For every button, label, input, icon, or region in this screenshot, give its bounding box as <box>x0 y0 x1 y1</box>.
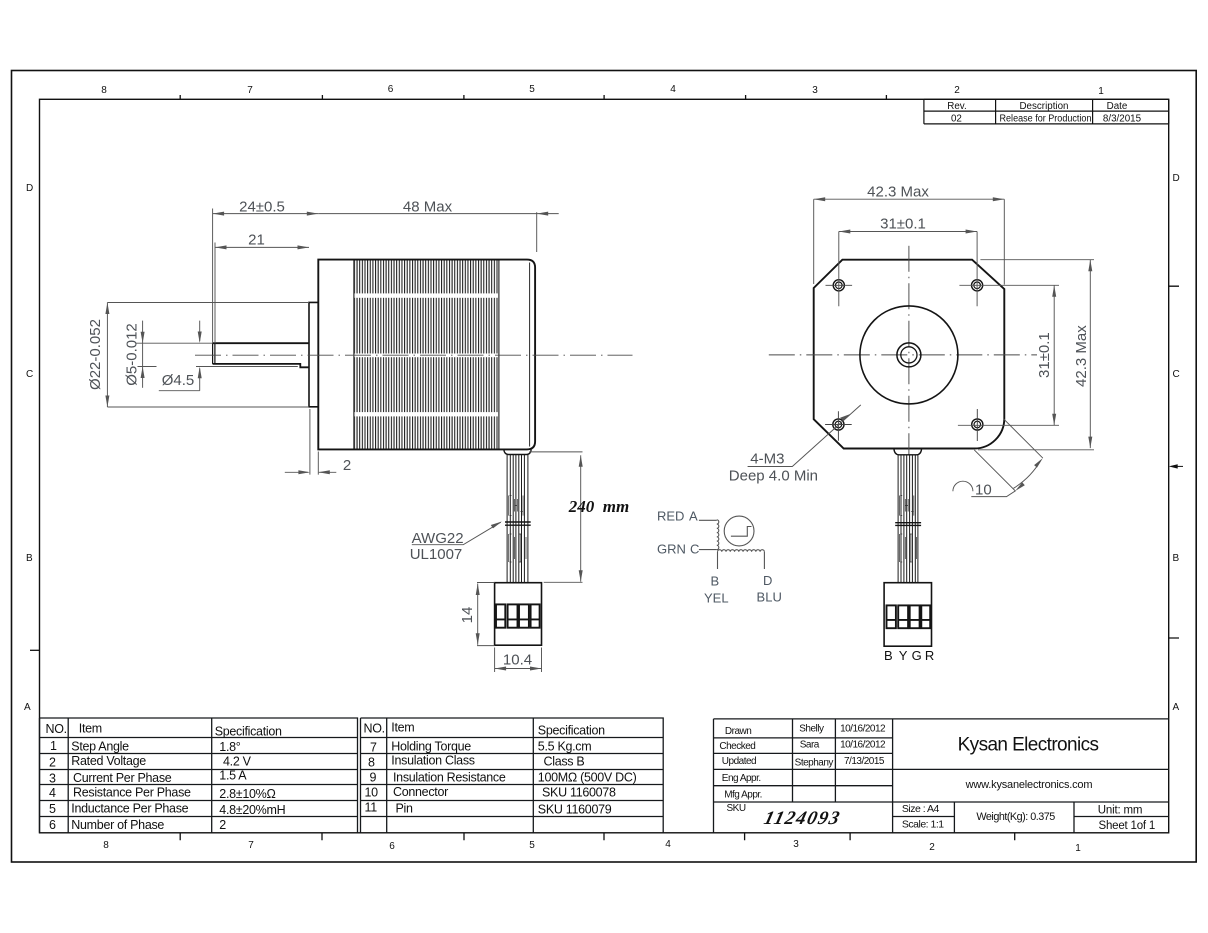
svg-text:Sheet 1of 1: Sheet 1of 1 <box>1098 820 1155 832</box>
svg-text:5: 5 <box>49 802 56 816</box>
svg-text:1: 1 <box>1075 843 1081 854</box>
svg-text:5: 5 <box>529 84 535 95</box>
svg-text:Release for Production: Release for Production <box>1000 113 1092 124</box>
svg-text:Updated: Updated <box>722 756 756 767</box>
svg-text:Item: Item <box>391 721 414 735</box>
svg-text:4: 4 <box>49 786 56 800</box>
svg-text:Resistance Per Phase: Resistance Per Phase <box>73 786 191 800</box>
svg-text:Current Per Phase: Current Per Phase <box>73 771 172 785</box>
svg-text:Step Angle: Step Angle <box>71 740 129 754</box>
svg-text:Kysan Electronics: Kysan Electronics <box>958 734 1099 755</box>
svg-text:Mfg Appr.: Mfg Appr. <box>724 790 762 801</box>
svg-text:3: 3 <box>793 839 799 850</box>
svg-text:Unit: mm: Unit: mm <box>1098 805 1142 817</box>
svg-text:Ø4.5: Ø4.5 <box>162 372 195 389</box>
svg-text:8/3/2015: 8/3/2015 <box>1103 113 1142 124</box>
svg-text:10/16/2012: 10/16/2012 <box>840 724 886 735</box>
svg-text:7: 7 <box>370 741 377 755</box>
svg-text:48 Max: 48 Max <box>403 199 453 216</box>
svg-text:100MΩ (500V DC): 100MΩ (500V DC) <box>538 771 637 785</box>
svg-text:2: 2 <box>929 842 935 853</box>
svg-text:Ø5-0.012: Ø5-0.012 <box>124 323 141 386</box>
svg-text:2: 2 <box>49 756 56 770</box>
svg-text:31±0.1: 31±0.1 <box>880 215 926 232</box>
svg-text:R: R <box>925 648 934 663</box>
svg-text:A: A <box>689 509 698 524</box>
svg-text:42.3 Max: 42.3 Max <box>867 184 929 201</box>
svg-text:D: D <box>763 573 772 588</box>
svg-text:10/16/2012: 10/16/2012 <box>840 739 886 750</box>
svg-text:2.8±10%Ω: 2.8±10%Ω <box>219 787 275 801</box>
svg-text:Item: Item <box>79 722 102 736</box>
svg-text:6: 6 <box>388 84 394 95</box>
svg-text:Number of Phase: Number of Phase <box>71 818 164 832</box>
svg-text:42.3 Max: 42.3 Max <box>1073 325 1090 387</box>
svg-text:Y: Y <box>899 648 908 663</box>
svg-text:6: 6 <box>389 841 395 852</box>
svg-text:A: A <box>1173 702 1180 713</box>
svg-text:24±0.5: 24±0.5 <box>239 199 285 216</box>
svg-text:3: 3 <box>49 772 56 786</box>
svg-text:B: B <box>884 648 893 663</box>
svg-text:8: 8 <box>368 756 375 770</box>
svg-text:NO.: NO. <box>46 722 67 736</box>
svg-text:SKU: SKU <box>727 803 746 814</box>
svg-text:Specification: Specification <box>538 724 605 738</box>
svg-text:Shelly: Shelly <box>799 724 824 735</box>
svg-text:Specification: Specification <box>215 725 282 739</box>
svg-text:3: 3 <box>812 85 818 96</box>
svg-text:Weight(Kg): 0.375: Weight(Kg): 0.375 <box>976 811 1055 823</box>
svg-text:B: B <box>26 553 33 564</box>
svg-text:UL1007: UL1007 <box>410 546 463 563</box>
svg-text:SKU 1160078: SKU 1160078 <box>542 786 616 800</box>
svg-text:2: 2 <box>954 85 960 96</box>
svg-text:10: 10 <box>365 786 379 800</box>
svg-text:2: 2 <box>219 818 226 832</box>
svg-text:4: 4 <box>670 84 676 95</box>
svg-text:G: G <box>912 648 922 663</box>
svg-text:9: 9 <box>370 771 377 785</box>
svg-text:Date: Date <box>1107 101 1128 112</box>
svg-text:1: 1 <box>50 739 57 753</box>
svg-text:Deep 4.0 Min: Deep 4.0 Min <box>729 467 818 484</box>
svg-text:Connector: Connector <box>393 785 448 799</box>
svg-text:21: 21 <box>248 232 265 249</box>
svg-text:Pin: Pin <box>396 802 414 816</box>
svg-text:14: 14 <box>459 607 476 624</box>
svg-text:D: D <box>26 183 33 194</box>
svg-text:Checked: Checked <box>719 741 755 752</box>
svg-text:7: 7 <box>247 85 253 96</box>
svg-text:240 mm: 240 mm <box>568 497 629 516</box>
svg-text:Class B: Class B <box>544 755 585 769</box>
svg-text:5.5 Kg.cm: 5.5 Kg.cm <box>538 740 592 754</box>
svg-text:2: 2 <box>343 457 351 474</box>
svg-text:YEL: YEL <box>704 591 729 606</box>
svg-text:NO.: NO. <box>364 722 385 736</box>
svg-text:C: C <box>1173 369 1180 380</box>
svg-text:1124093: 1124093 <box>762 808 843 829</box>
svg-text:1.8°: 1.8° <box>219 740 240 754</box>
svg-text:4-M3: 4-M3 <box>750 450 784 467</box>
svg-text:Rev.: Rev. <box>947 101 966 112</box>
svg-text:1.5 A: 1.5 A <box>219 769 247 783</box>
svg-text:Drawn: Drawn <box>725 726 751 737</box>
svg-text:BLU: BLU <box>757 590 782 605</box>
svg-text:02: 02 <box>951 113 962 124</box>
svg-text:10: 10 <box>975 481 992 498</box>
svg-text:C: C <box>690 541 699 556</box>
svg-text:4.8±20%mH: 4.8±20%mH <box>219 803 285 817</box>
svg-text:7: 7 <box>248 840 254 851</box>
svg-text:31±0.1: 31±0.1 <box>1036 332 1053 378</box>
svg-text:C: C <box>26 369 33 380</box>
svg-text:5: 5 <box>529 840 535 851</box>
svg-text:7/13/2015: 7/13/2015 <box>844 756 885 767</box>
svg-text:A: A <box>24 702 31 713</box>
svg-text:8: 8 <box>101 85 107 96</box>
svg-text:B: B <box>1173 553 1180 564</box>
svg-text:Sara: Sara <box>800 740 820 751</box>
svg-text:4.2 V: 4.2 V <box>223 755 252 769</box>
svg-text:SKU 1160079: SKU 1160079 <box>538 803 612 817</box>
svg-text:Ø22-0.052: Ø22-0.052 <box>87 319 104 390</box>
svg-text:Eng Appr.: Eng Appr. <box>722 773 761 784</box>
svg-text:D: D <box>1173 173 1180 184</box>
svg-text:4: 4 <box>665 839 671 850</box>
svg-text:6: 6 <box>49 818 56 832</box>
svg-text:8: 8 <box>103 840 109 851</box>
svg-text:Scale: 1:1: Scale: 1:1 <box>902 818 944 830</box>
svg-text:GRN: GRN <box>657 541 686 556</box>
svg-text:1: 1 <box>1098 86 1104 97</box>
svg-text:Rated Voltage: Rated Voltage <box>71 754 146 768</box>
svg-text:www.kysanelectronics.com: www.kysanelectronics.com <box>965 779 1093 791</box>
svg-text:10.4: 10.4 <box>503 652 532 669</box>
svg-text:B: B <box>710 573 719 588</box>
svg-text:Stephany: Stephany <box>795 757 834 768</box>
svg-text:Description: Description <box>1019 101 1068 112</box>
svg-text:Holding Torque: Holding Torque <box>391 740 471 754</box>
svg-text:Insulation Class: Insulation Class <box>391 754 474 768</box>
svg-text:Size : A4: Size : A4 <box>902 803 940 815</box>
svg-text:RED: RED <box>657 509 684 524</box>
svg-text:Insulation Resistance: Insulation Resistance <box>393 771 506 785</box>
svg-text:Inductance Per Phase: Inductance Per Phase <box>71 802 188 816</box>
svg-text:11: 11 <box>365 801 378 815</box>
